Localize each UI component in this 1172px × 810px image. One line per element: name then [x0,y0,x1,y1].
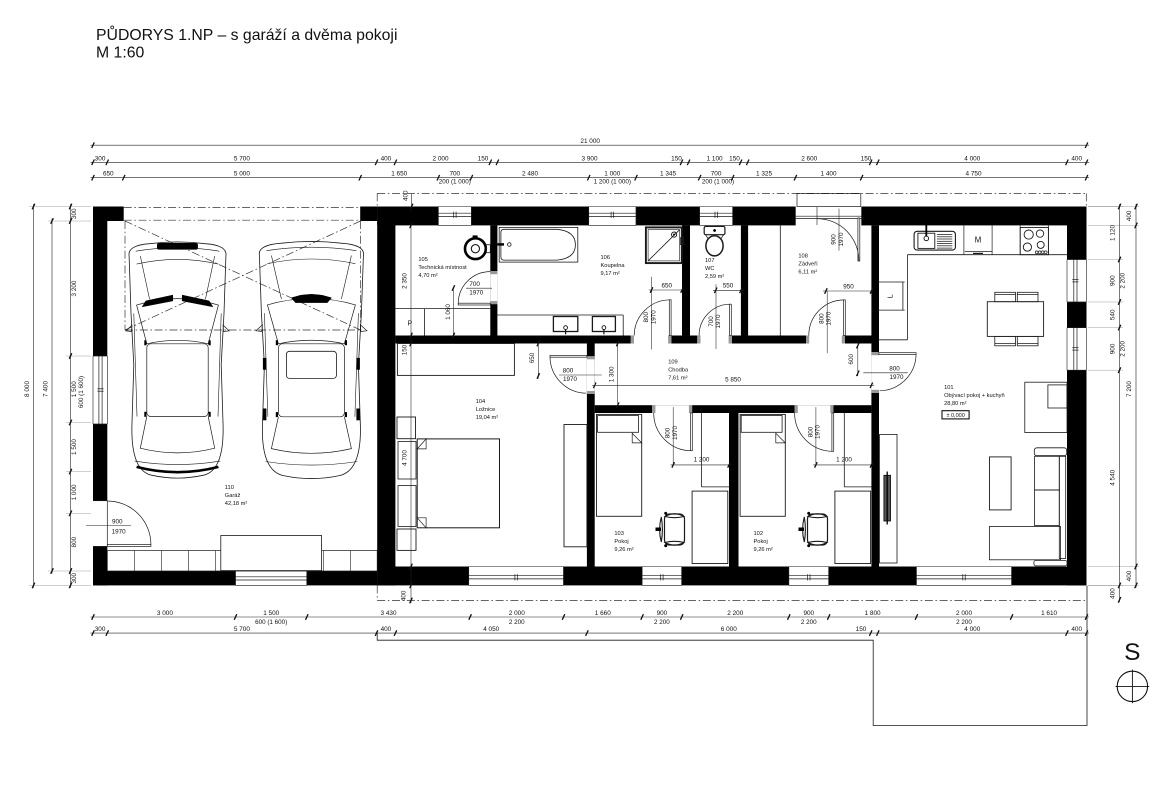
svg-text:400: 400 [1126,570,1133,581]
svg-text:1 500: 1 500 [71,439,78,455]
svg-text:400: 400 [402,190,409,201]
svg-text:4 700: 4 700 [402,450,409,466]
svg-text:1 200 (1 000): 1 200 (1 000) [594,178,631,185]
svg-text:2 200: 2 200 [1120,272,1127,288]
svg-text:2 600: 2 600 [801,155,817,162]
svg-text:1 345: 1 345 [660,171,676,178]
svg-text:1 060: 1 060 [445,304,452,320]
svg-text:1 610: 1 610 [1041,610,1057,617]
svg-text:4 050: 4 050 [483,626,499,633]
svg-text:200 (1 000): 200 (1 000) [439,178,471,185]
svg-text:800: 800 [819,313,826,324]
svg-text:1 400: 1 400 [821,171,837,178]
svg-text:4,70 m²: 4,70 m² [418,273,437,279]
svg-text:Ložnice: Ložnice [476,407,496,413]
svg-text:± 0,000: ± 0,000 [946,413,964,419]
svg-text:540: 540 [1110,309,1117,320]
svg-text:300: 300 [95,626,106,633]
svg-text:800: 800 [807,426,814,437]
svg-text:650: 650 [103,171,114,178]
svg-text:700: 700 [449,171,460,178]
svg-text:950: 950 [843,283,854,290]
svg-text:300: 300 [95,155,106,162]
svg-text:1 200: 1 200 [836,457,852,464]
svg-text:4 000: 4 000 [964,155,980,162]
svg-text:2 000: 2 000 [956,610,972,617]
svg-text:1970: 1970 [889,374,904,381]
svg-text:1970: 1970 [469,290,484,297]
svg-text:6,11 m²: 6,11 m² [798,270,817,276]
svg-text:8 000: 8 000 [24,381,31,397]
svg-text:1 120: 1 120 [1110,225,1117,241]
svg-text:103: 103 [614,531,624,537]
svg-text:1970: 1970 [563,376,578,383]
svg-text:2 200: 2 200 [956,619,972,626]
svg-text:Chodba: Chodba [668,368,689,374]
svg-text:1 800: 1 800 [865,610,881,617]
svg-text:1970: 1970 [650,310,657,325]
svg-text:1970: 1970 [838,232,845,247]
svg-text:Pokoj: Pokoj [754,539,768,545]
svg-text:28,80 m²: 28,80 m² [944,401,967,407]
svg-text:110: 110 [225,485,234,491]
svg-text:800: 800 [665,427,672,438]
svg-text:400: 400 [1071,155,1082,162]
svg-text:WC: WC [705,266,714,272]
svg-text:5 000: 5 000 [234,171,250,178]
svg-text:600 (1 600): 600 (1 600) [78,376,85,408]
svg-text:400: 400 [1110,588,1117,599]
svg-text:300: 300 [71,208,78,219]
svg-text:550: 550 [723,283,734,290]
svg-text:700: 700 [711,171,722,178]
svg-text:4 000: 4 000 [964,626,980,633]
svg-text:150: 150 [478,155,489,162]
svg-text:104: 104 [476,399,486,405]
svg-text:400: 400 [381,155,392,162]
svg-text:107: 107 [705,258,715,264]
svg-text:S: S [1124,639,1140,666]
svg-text:1 650: 1 650 [391,171,407,178]
svg-text:1 000: 1 000 [71,484,78,500]
svg-text:4 750: 4 750 [966,171,982,178]
svg-text:200 (1 000): 200 (1 000) [702,178,734,185]
svg-text:1 300: 1 300 [609,366,616,382]
svg-text:150: 150 [671,155,682,162]
svg-text:2 000: 2 000 [509,610,525,617]
svg-text:9,26 m²: 9,26 m² [614,547,633,553]
svg-text:3 200: 3 200 [71,280,78,296]
svg-text:650: 650 [529,352,536,363]
svg-text:PŮDORYS 1.NP – s garáží a dvěm: PŮDORYS 1.NP – s garáží a dvěma pokoji [96,25,397,44]
svg-text:1 200: 1 200 [694,457,710,464]
svg-text:9,26 m²: 9,26 m² [754,547,773,553]
svg-text:900: 900 [112,518,123,525]
svg-text:9,17 m²: 9,17 m² [601,271,620,277]
svg-text:1970: 1970 [715,314,722,329]
svg-text:7,61 m²: 7,61 m² [668,376,687,382]
svg-text:1 100: 1 100 [707,155,723,162]
svg-text:800: 800 [71,536,78,547]
svg-text:900: 900 [831,234,838,245]
svg-text:1970: 1970 [112,528,127,535]
svg-text:Zádveří: Zádveří [798,262,818,268]
svg-text:5 700: 5 700 [234,626,250,633]
svg-text:150: 150 [856,626,867,633]
svg-text:150: 150 [402,344,409,355]
svg-text:1 660: 1 660 [595,610,611,617]
svg-text:4 540: 4 540 [1110,469,1117,485]
svg-text:800: 800 [563,368,574,375]
svg-text:L: L [885,294,894,298]
svg-text:300: 300 [71,572,78,583]
svg-text:3 430: 3 430 [381,610,397,617]
svg-text:6 000: 6 000 [721,626,737,633]
svg-text:2 000: 2 000 [433,155,449,162]
svg-text:Technická místnost: Technická místnost [418,265,467,271]
svg-text:Pokoj: Pokoj [614,539,628,545]
svg-text:3 000: 3 000 [157,610,173,617]
svg-text:P: P [407,320,412,327]
svg-text:400: 400 [401,590,408,601]
svg-text:42,18 m²: 42,18 m² [225,501,248,507]
svg-text:19,04 m²: 19,04 m² [476,415,499,421]
svg-text:102: 102 [754,531,764,537]
svg-text:3 900: 3 900 [582,155,598,162]
svg-text:1970: 1970 [672,426,679,441]
svg-text:1 500: 1 500 [263,610,279,617]
svg-text:900: 900 [657,610,668,617]
svg-text:150: 150 [729,155,740,162]
svg-text:106: 106 [601,255,611,261]
svg-text:M 1:60: M 1:60 [96,44,145,61]
svg-text:21 000: 21 000 [580,138,600,145]
svg-text:600 (1 600): 600 (1 600) [255,619,287,626]
svg-text:600: 600 [848,354,855,365]
svg-text:1 325: 1 325 [756,171,772,178]
svg-text:Garáž: Garáž [225,493,241,499]
svg-text:800: 800 [889,365,900,372]
svg-text:7 200: 7 200 [1126,381,1133,397]
svg-text:1 500: 1 500 [71,381,78,397]
svg-text:5 700: 5 700 [234,155,250,162]
svg-text:M: M [975,236,982,245]
svg-text:2 200: 2 200 [654,619,670,626]
svg-text:150: 150 [861,155,872,162]
svg-text:900: 900 [803,610,814,617]
svg-text:1 000: 1 000 [604,171,620,178]
svg-text:101: 101 [944,385,954,391]
svg-text:800: 800 [643,311,650,322]
svg-text:2 200: 2 200 [1120,341,1127,357]
svg-text:108: 108 [798,254,808,260]
svg-text:105: 105 [418,257,428,263]
svg-text:700: 700 [708,316,715,327]
svg-text:400: 400 [381,626,392,633]
svg-text:2 200: 2 200 [801,619,817,626]
svg-text:Koupelna: Koupelna [601,263,626,269]
svg-text:1970: 1970 [826,311,833,326]
svg-text:900: 900 [1110,343,1117,354]
svg-text:1970: 1970 [814,425,821,440]
svg-text:400: 400 [1126,210,1133,221]
svg-text:2 350: 2 350 [402,273,409,289]
svg-text:7 400: 7 400 [43,381,50,397]
svg-text:Obývací pokoj + kuchyň: Obývací pokoj + kuchyň [944,393,1005,399]
svg-text:2,59 m²: 2,59 m² [705,274,724,280]
svg-text:900: 900 [1110,275,1117,286]
svg-text:2 200: 2 200 [727,610,743,617]
svg-text:2 480: 2 480 [522,171,538,178]
svg-text:650: 650 [662,282,673,289]
svg-text:5 850: 5 850 [725,376,741,383]
svg-text:700: 700 [469,281,480,288]
svg-text:109: 109 [668,360,678,366]
svg-text:2 200: 2 200 [509,619,525,626]
svg-text:400: 400 [1071,626,1082,633]
